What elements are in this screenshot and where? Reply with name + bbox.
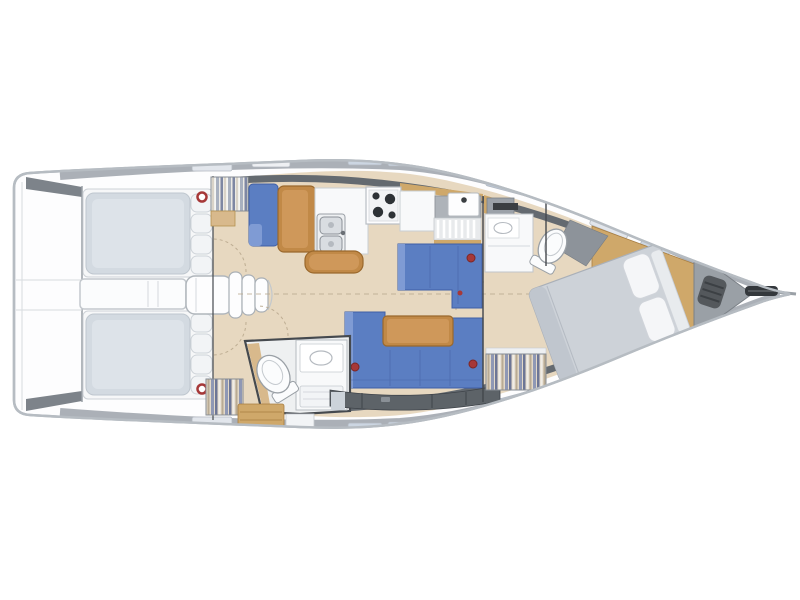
companionway-steps bbox=[229, 272, 272, 318]
aft-wardrobe-starboard bbox=[206, 379, 243, 415]
nav-seat-cushion bbox=[249, 224, 262, 246]
aft-head-sink-counter bbox=[300, 344, 343, 372]
galley-faucet bbox=[341, 231, 345, 235]
cushion-button bbox=[467, 254, 475, 262]
forward-wardrobe bbox=[486, 354, 546, 390]
galley-faucet-2 bbox=[461, 197, 467, 203]
aft-dresser-port bbox=[211, 211, 235, 226]
locker-latch bbox=[381, 397, 390, 402]
cushion-highlight bbox=[92, 320, 184, 389]
aft-wardrobe-port bbox=[211, 177, 248, 211]
forward-head-counter bbox=[488, 218, 519, 238]
forward-wardrobe-shelf bbox=[486, 348, 546, 354]
galley-bar-top bbox=[309, 254, 359, 270]
cushion-button bbox=[351, 363, 359, 371]
dinette-armrest bbox=[398, 244, 405, 290]
yacht-floorplan bbox=[0, 0, 800, 600]
fridge-vent bbox=[434, 218, 481, 240]
galley-fridge bbox=[400, 191, 435, 231]
yacht-floorplan-page bbox=[0, 0, 800, 600]
galley-sink-2 bbox=[448, 193, 479, 216]
salon-table-top bbox=[387, 319, 449, 343]
cushion-button bbox=[469, 360, 477, 368]
nav-station bbox=[249, 184, 316, 252]
cabinet-front bbox=[493, 203, 518, 210]
cushion-highlight bbox=[92, 199, 184, 268]
helm-console bbox=[186, 276, 232, 314]
locker-panel bbox=[331, 392, 345, 410]
cockpit-table bbox=[80, 279, 186, 309]
cockpit bbox=[80, 189, 232, 399]
sink-drain-1 bbox=[328, 222, 334, 228]
sink-drain-2 bbox=[328, 241, 334, 247]
floor-fitting bbox=[458, 291, 463, 296]
chart-table-top bbox=[282, 190, 308, 248]
